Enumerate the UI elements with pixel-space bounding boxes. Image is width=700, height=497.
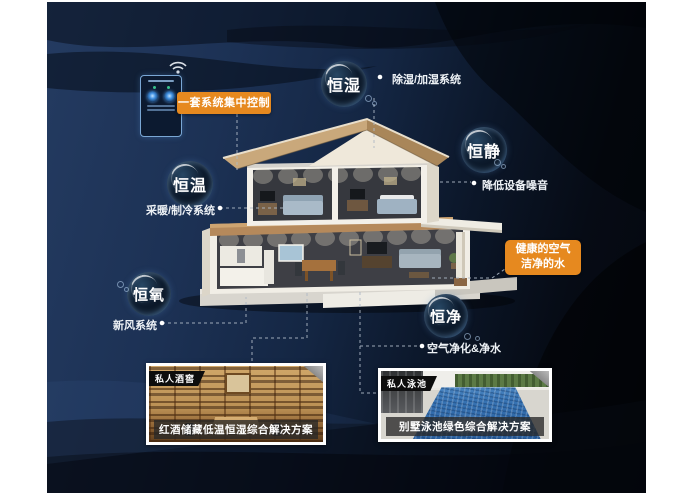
bubble-constant-temperature: 恒温 [167, 161, 213, 207]
clean-water-line: 洁净的水 [505, 257, 581, 272]
bubble-label: 恒湿 [327, 72, 361, 96]
bubble-label: 恒氧 [133, 284, 165, 305]
mini-bubble [117, 281, 124, 288]
note-air-water-purification: 空气净化&净水 [427, 340, 501, 356]
pool-tag: 私人泳池 [381, 376, 437, 391]
mini-bubble [494, 159, 501, 166]
note-reduce-noise: 降低设备噪音 [482, 177, 548, 193]
bubble-constant-oxygen: 恒氧 [127, 272, 171, 316]
panel-header-bar [148, 80, 174, 82]
wine-cellar-tag: 私人酒窖 [149, 371, 205, 386]
mini-bubble [501, 164, 506, 169]
panel-dial-right [164, 91, 175, 102]
bubble-label: 恒温 [173, 172, 207, 196]
wifi-icon [168, 59, 188, 75]
panel-dials [144, 91, 178, 102]
note-fresh-air-system: 新风系统 [113, 317, 157, 333]
note-dehumidify-system: 除湿/加湿系统 [392, 71, 461, 87]
wine-wall-frame [225, 373, 251, 394]
panel-row [147, 105, 175, 107]
smart-control-panel-icon [140, 75, 182, 137]
corner-ribbon [298, 366, 323, 388]
smart-home-poster: 一套系统集中控制 健康的空气 洁净的水 恒湿 除湿/加湿系统 恒静 降低设备噪音… [47, 2, 646, 493]
wine-card-caption: 红酒储藏低温恒湿综合解决方案 [154, 420, 318, 439]
bubble-constant-humidity: 恒湿 [321, 61, 367, 107]
mini-bubble [464, 333, 471, 340]
panel-status-dots [147, 86, 175, 89]
mini-bubble [372, 101, 377, 106]
healthy-air-line: 健康的空气 [505, 242, 581, 257]
pool-card: 私人泳池 别墅泳池绿色综合解决方案 [378, 368, 552, 442]
central-control-label: 一套系统集中控制 [177, 92, 271, 114]
bubble-constant-purity: 恒净 [424, 294, 468, 338]
wine-cellar-card: 私人酒窖 红酒储藏低温恒湿综合解决方案 [146, 363, 326, 445]
bubble-label: 恒净 [430, 306, 462, 327]
mini-bubble [365, 95, 372, 102]
healthy-air-water-label: 健康的空气 洁净的水 [505, 240, 581, 275]
pool-card-caption: 别墅泳池绿色综合解决方案 [386, 417, 544, 436]
panel-row [147, 109, 175, 111]
page: { "poster": { "control_panel": { "label"… [0, 0, 700, 497]
note-heating-cooling-system: 采暖/制冷系统 [146, 202, 215, 218]
pool-photo: 私人泳池 别墅泳池绿色综合解决方案 [381, 371, 549, 439]
wine-cellar-photo: 私人酒窖 红酒储藏低温恒湿综合解决方案 [149, 366, 323, 442]
mini-bubble [124, 287, 129, 292]
panel-dial-left [147, 91, 158, 102]
mini-bubble [475, 336, 480, 341]
